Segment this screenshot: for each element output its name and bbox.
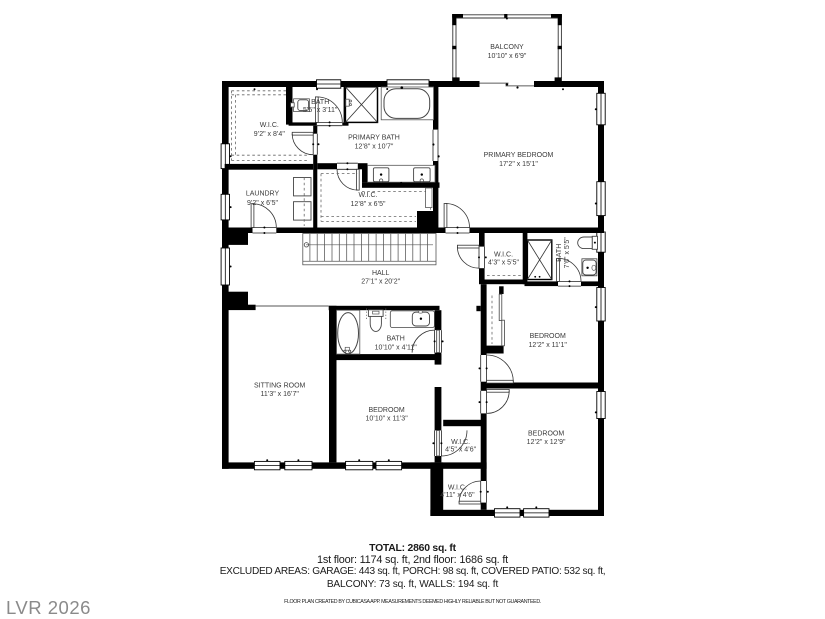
svg-text:5’5" x 3’11": 5’5" x 3’11" bbox=[303, 107, 338, 114]
svg-text:LAUNDRY: LAUNDRY bbox=[246, 191, 280, 198]
svg-text:PRIMARY BATH: PRIMARY BATH bbox=[348, 135, 400, 142]
svg-text:10’10" x 11’3": 10’10" x 11’3" bbox=[365, 416, 408, 423]
svg-text:SITTING ROOM: SITTING ROOM bbox=[254, 383, 306, 390]
svg-text:10’10" x 4’11": 10’10" x 4’11" bbox=[375, 344, 418, 351]
svg-text:27’1" x 20’2": 27’1" x 20’2" bbox=[361, 279, 400, 286]
svg-text:BEDROOM: BEDROOM bbox=[530, 333, 566, 340]
svg-text:BEDROOM: BEDROOM bbox=[369, 407, 405, 414]
svg-text:PRIMARY BEDROOM: PRIMARY BEDROOM bbox=[484, 152, 554, 159]
svg-text:W.I.C.: W.I.C. bbox=[358, 192, 377, 199]
svg-text:W.I.C.: W.I.C. bbox=[448, 484, 467, 491]
svg-text:4’5" x 4’6": 4’5" x 4’6" bbox=[445, 446, 477, 453]
svg-text:BALCONY: BALCONY bbox=[490, 44, 524, 51]
svg-text:11’3" x 16’7": 11’3" x 16’7" bbox=[261, 391, 300, 398]
svg-text:9’2" x 6’5": 9’2" x 6’5" bbox=[247, 200, 279, 207]
svg-text:17’2" x 15’1": 17’2" x 15’1" bbox=[499, 161, 538, 168]
svg-text:12’8" x 6’5": 12’8" x 6’5" bbox=[351, 201, 386, 208]
svg-text:W.I.C.: W.I.C. bbox=[260, 122, 279, 129]
svg-text:HALL: HALL bbox=[372, 270, 390, 277]
svg-text:4’11" x 4’6": 4’11" x 4’6" bbox=[440, 492, 475, 499]
svg-text:12’8" x 10’7": 12’8" x 10’7" bbox=[355, 144, 394, 151]
svg-text:BATH: BATH bbox=[311, 99, 329, 106]
svg-text:BATH: BATH bbox=[556, 244, 563, 262]
svg-text:9’2" x 8’4": 9’2" x 8’4" bbox=[254, 131, 286, 138]
svg-text:BATH: BATH bbox=[387, 336, 405, 343]
svg-text:BEDROOM: BEDROOM bbox=[528, 431, 564, 438]
svg-text:12’2" x 12’9": 12’2" x 12’9" bbox=[527, 439, 566, 446]
svg-text:12’2" x 11’1": 12’2" x 11’1" bbox=[529, 342, 568, 349]
svg-text:W.I.C.: W.I.C. bbox=[494, 252, 513, 259]
svg-text:4’3" x 5’5": 4’3" x 5’5" bbox=[488, 260, 520, 267]
svg-text:7’6" x 5’5": 7’6" x 5’5" bbox=[564, 237, 571, 269]
svg-text:W.I.C.: W.I.C. bbox=[451, 439, 470, 446]
svg-text:10’10" x 6’9": 10’10" x 6’9" bbox=[488, 53, 527, 60]
